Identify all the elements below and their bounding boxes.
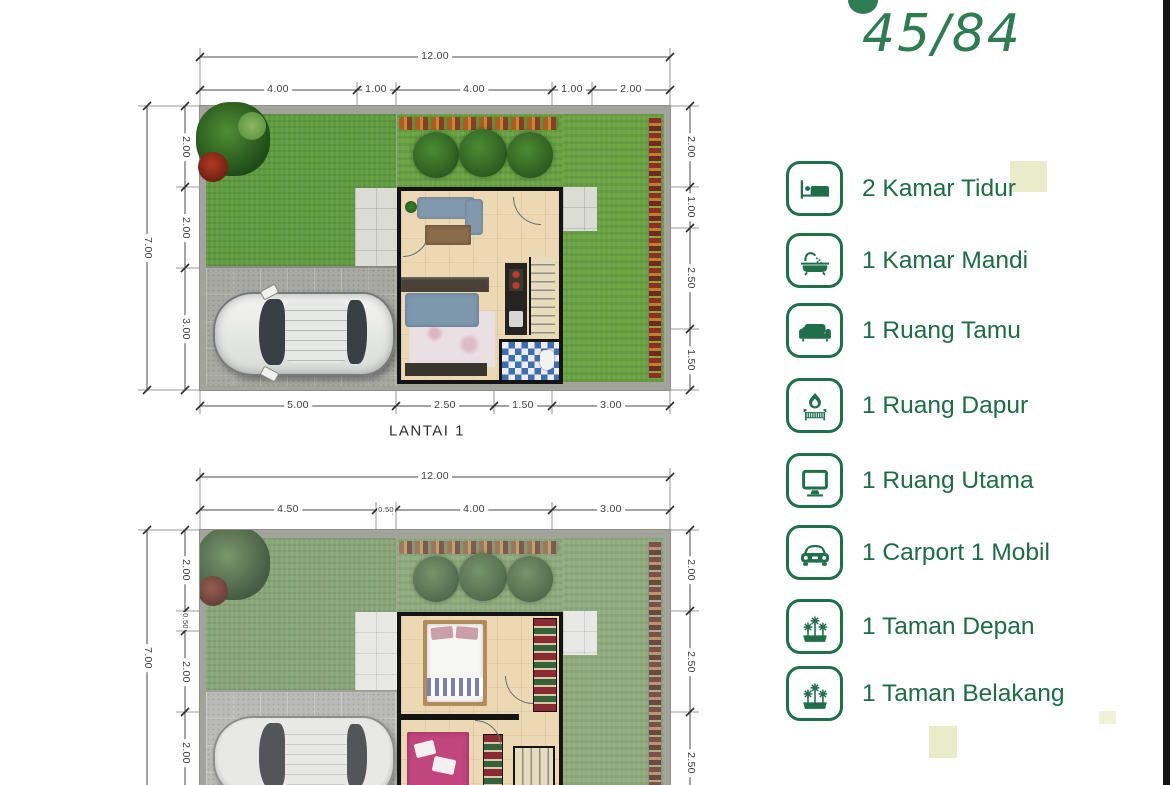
potted-plant (405, 201, 417, 213)
dim-label: 2.00 (684, 133, 696, 161)
dim-label: 3.00 (597, 400, 625, 412)
floor-1-title: LANTAI 1 (389, 423, 465, 440)
decor-square (929, 726, 957, 758)
car-icon (786, 525, 843, 580)
dim-label: 7.00 (141, 234, 153, 262)
legend-label: 1 Taman Belakang (862, 680, 1065, 708)
dim-label: 7.00 (141, 644, 153, 672)
stairs (529, 257, 555, 335)
bathtub-icon (786, 233, 843, 288)
house-type-label: 45/84 (862, 4, 1022, 64)
flower-row (399, 541, 559, 554)
screen-edge-bar (1163, 0, 1170, 785)
kitchen-counter (505, 263, 527, 335)
dim-label: 1.00 (558, 84, 586, 96)
legend-row-kamar-tidur: 2 Kamar Tidur (786, 161, 1016, 216)
front-garden (397, 114, 563, 188)
legend-label: 1 Ruang Dapur (862, 392, 1028, 420)
garden-bush (459, 129, 507, 177)
dim-label: 2.00 (684, 556, 696, 584)
house-floor-2 (397, 612, 563, 785)
dim-label: 0.50 (377, 506, 395, 514)
car-roof (285, 301, 347, 363)
flower-row (399, 117, 559, 130)
car-windshield (259, 723, 285, 785)
garden-bush (507, 132, 553, 178)
legend-row-taman-depan: 1 Taman Depan (786, 599, 1035, 654)
garden-bush (413, 132, 459, 178)
legend-label: 1 Kamar Mandi (862, 247, 1028, 275)
house-floor-1 (397, 187, 563, 384)
dim-label: 4.00 (460, 84, 488, 96)
dim-label: 0.50 (181, 612, 189, 630)
garden-icon (786, 666, 843, 721)
dim-label: 1.00 (684, 193, 696, 221)
dim-label: 1.50 (509, 400, 537, 412)
garden-bush (413, 556, 459, 602)
toilet (540, 350, 554, 370)
car (213, 292, 395, 376)
door-arc (505, 676, 533, 704)
cabinet-divider (401, 277, 489, 292)
car-roof (285, 725, 347, 785)
dim-label: 2.00 (179, 739, 191, 767)
sofa-icon (786, 303, 843, 358)
garden-icon (786, 599, 843, 654)
dim-label: 2.00 (179, 658, 191, 686)
side-terrace (563, 611, 597, 655)
door-arc (513, 197, 541, 225)
monitor-icon (786, 453, 843, 508)
stove-icon (786, 378, 843, 433)
kitchen-sink (509, 311, 523, 327)
legend-label: 1 Ruang Tamu (862, 317, 1021, 345)
bed-second (407, 732, 469, 785)
dim-label: 2.50 (684, 264, 696, 292)
dim-label: 2.00 (179, 133, 191, 161)
legend-row-ruang-utama: 1 Ruang Utama (786, 453, 1034, 508)
pillow (430, 626, 453, 640)
bed-icon (786, 161, 843, 216)
front-garden (397, 538, 563, 612)
tv-cabinet (405, 363, 487, 376)
brochure-page: 12.00 4.00 1.00 4.00 1.00 2.00 7.00 2.00… (0, 0, 1170, 785)
pillow (414, 740, 437, 758)
legend-row-ruang-dapur: 1 Ruang Dapur (786, 378, 1028, 433)
dim-label: 4.00 (460, 504, 488, 516)
flower-border-strip (648, 118, 662, 378)
legend-label: 1 Taman Depan (862, 613, 1035, 641)
dim-label: 4.00 (264, 84, 292, 96)
floor-plan-lantai-2 (200, 530, 670, 785)
stove-top (509, 269, 523, 291)
garden-bush (459, 553, 507, 601)
car-rear-window (347, 724, 367, 785)
bedroom-divider-wall (401, 714, 519, 720)
dim-label: 2.50 (684, 749, 696, 777)
dim-label: 1.00 (362, 84, 390, 96)
family-sofa (405, 293, 479, 327)
pillow (456, 626, 479, 640)
legend-row-kamar-mandi: 1 Kamar Mandi (786, 233, 1028, 288)
dim-label: 1.50 (684, 346, 696, 374)
car (213, 716, 395, 785)
door-arc (403, 231, 429, 257)
dim-label: 5.00 (284, 400, 312, 412)
flower-border-strip (648, 542, 662, 785)
bathroom (499, 339, 559, 380)
legend-row-ruang-tamu: 1 Ruang Tamu (786, 303, 1021, 358)
door-arc (475, 720, 501, 746)
legend-row-taman-belakang: 1 Taman Belakang (786, 666, 1065, 721)
legend-label: 2 Kamar Tidur (862, 175, 1016, 203)
blanket-foot (427, 678, 483, 696)
shrub (238, 112, 266, 140)
floor-plan-lantai-1 (200, 106, 670, 390)
dim-label: 4.50 (274, 504, 302, 516)
entry-walkway (355, 188, 397, 267)
dim-label: 12.00 (418, 51, 452, 63)
coffee-table (425, 225, 471, 245)
red-bush (198, 152, 228, 182)
stairs (513, 746, 555, 785)
dim-label: 2.50 (684, 648, 696, 676)
decor-square (1099, 711, 1116, 724)
wardrobe (533, 618, 557, 712)
car-rear-window (347, 300, 367, 364)
side-terrace (563, 187, 597, 231)
legend-row-carport: 1 Carport 1 Mobil (786, 525, 1050, 580)
dim-label: 12.00 (418, 471, 452, 483)
legend-label: 1 Ruang Utama (862, 467, 1034, 495)
car-windshield (259, 299, 285, 365)
legend-label: 1 Carport 1 Mobil (862, 539, 1050, 567)
dim-label: 2.00 (179, 214, 191, 242)
entry-walkway (355, 612, 397, 691)
garden-bush (507, 556, 553, 602)
dim-label: 2.00 (617, 84, 645, 96)
dim-label: 3.00 (597, 504, 625, 516)
dim-label: 2.50 (431, 400, 459, 412)
dim-label: 3.00 (179, 315, 191, 343)
bed-main (427, 624, 483, 702)
pillow (432, 756, 457, 775)
dim-label: 2.00 (179, 556, 191, 584)
